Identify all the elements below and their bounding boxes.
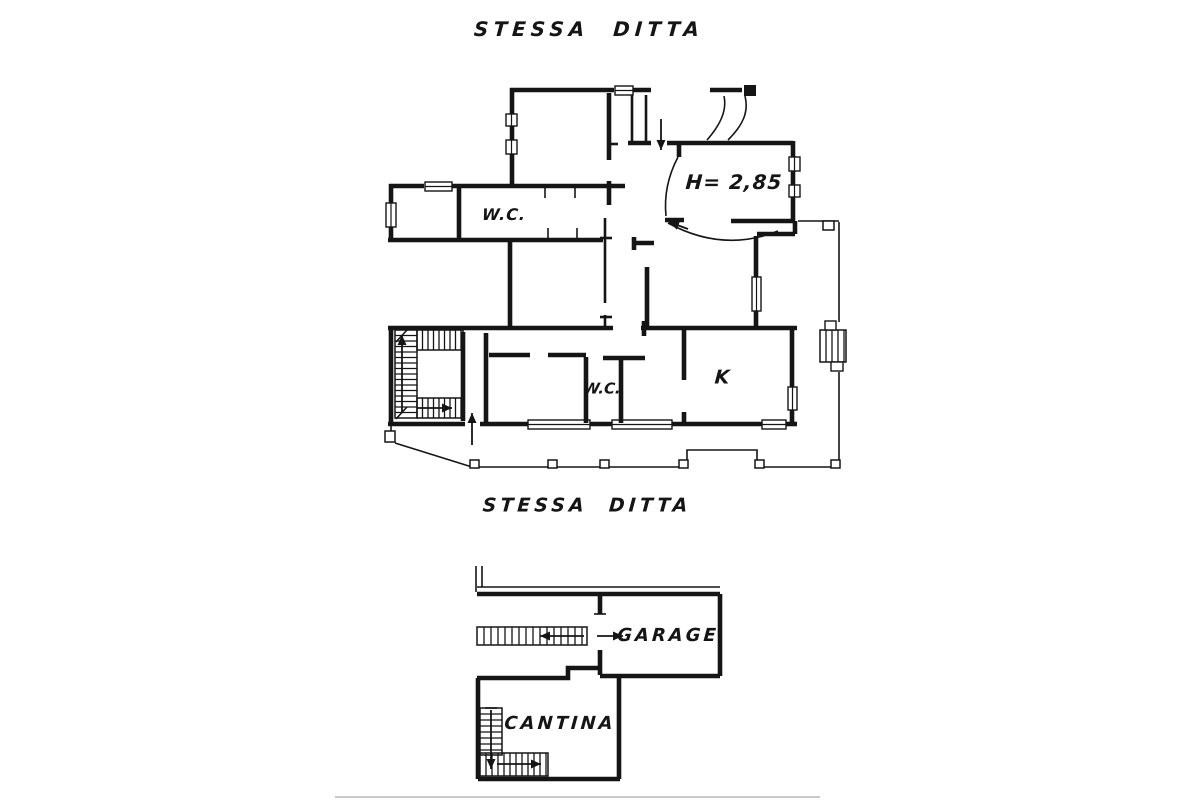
room-label-kitchen: K	[714, 369, 730, 388]
title-lower: STESSA DITTA	[482, 497, 692, 516]
room-label-garage: GARAGE	[617, 627, 720, 645]
room-label-cantina: CANTINA	[504, 715, 616, 733]
title-upper: STESSA DITTA	[473, 19, 704, 39]
floor-plan-drawing	[0, 0, 1200, 800]
height-annotation: H= 2,85	[685, 172, 783, 192]
room-label-wc-lower: W.C.	[583, 382, 622, 397]
room-label-wc-upper: W.C.	[481, 207, 526, 223]
floorplan-page: STESSA DITTA STESSA DITTA W.C. H= 2,85 W…	[0, 0, 1200, 800]
